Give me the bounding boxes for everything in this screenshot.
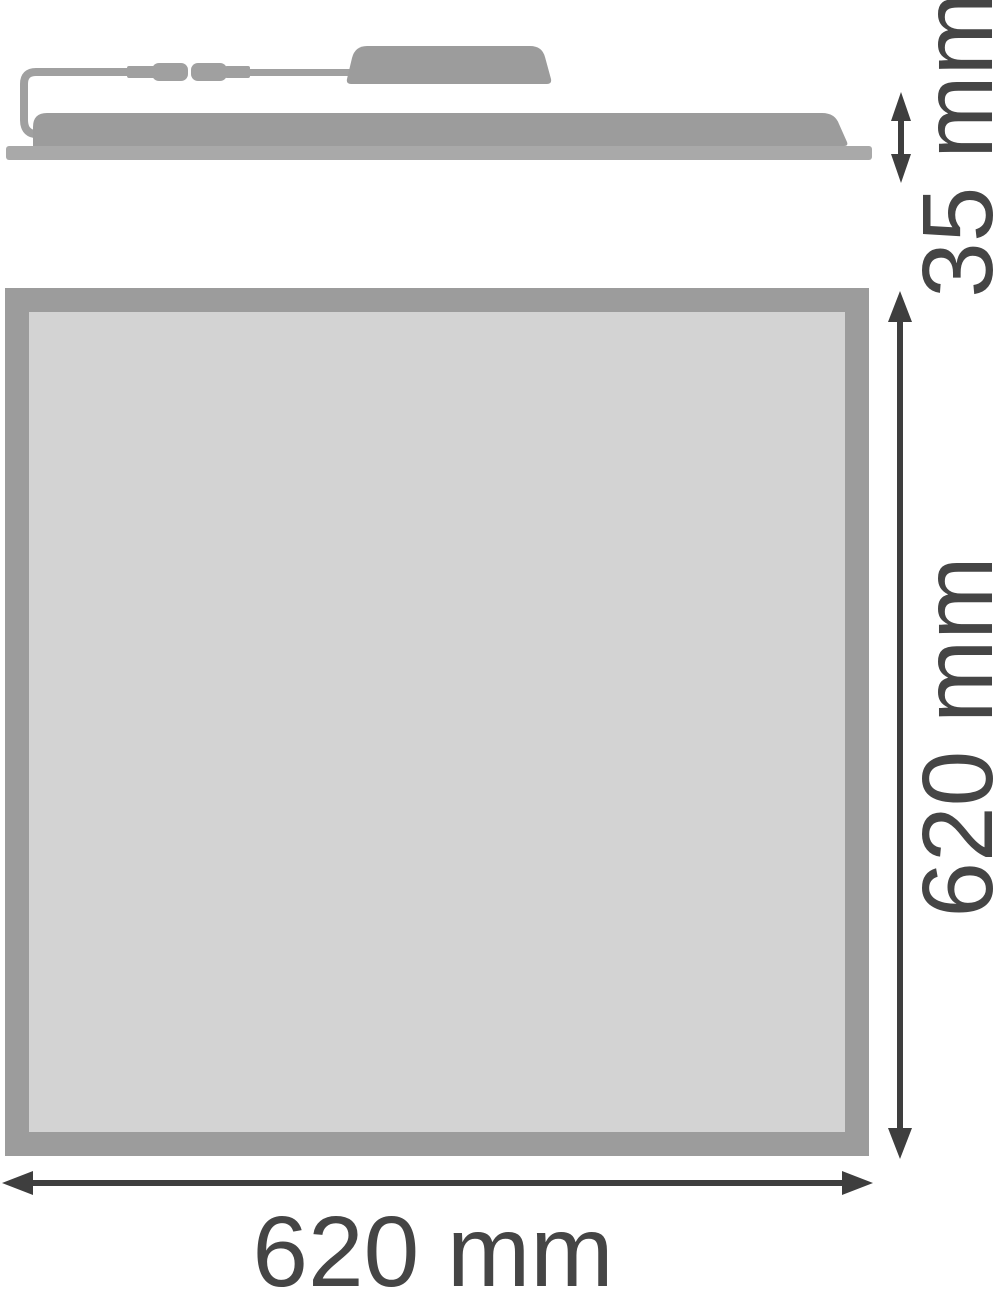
front-width-label: 620 mm	[233, 1202, 633, 1302]
front-height-label: 620 mm	[908, 537, 1000, 937]
driver-cable	[244, 69, 350, 76]
height-dimension-label: 35 mm	[908, 0, 1000, 305]
luminaire-dimension-diagram: 35 mm 620 mm 620 mm	[0, 0, 1000, 1284]
power-cable	[24, 72, 128, 134]
arrowhead-right-icon	[842, 1171, 873, 1195]
panel-diffuser-face	[29, 312, 845, 1132]
front-width-arrow	[2, 1171, 873, 1195]
connector-plug	[152, 63, 188, 81]
panel-front-view	[5, 288, 869, 1156]
cable-connector	[127, 63, 250, 81]
panel-baseplate	[6, 146, 872, 160]
arrowhead-down-icon	[888, 1128, 912, 1159]
driver-box	[347, 46, 551, 84]
panel-side-view	[0, 0, 1000, 260]
connector-socket	[191, 63, 227, 81]
connector-stub-right	[225, 66, 250, 78]
panel-body-profile	[33, 113, 847, 146]
connector-stub-left	[127, 66, 155, 78]
arrowhead-left-icon	[2, 1171, 33, 1195]
